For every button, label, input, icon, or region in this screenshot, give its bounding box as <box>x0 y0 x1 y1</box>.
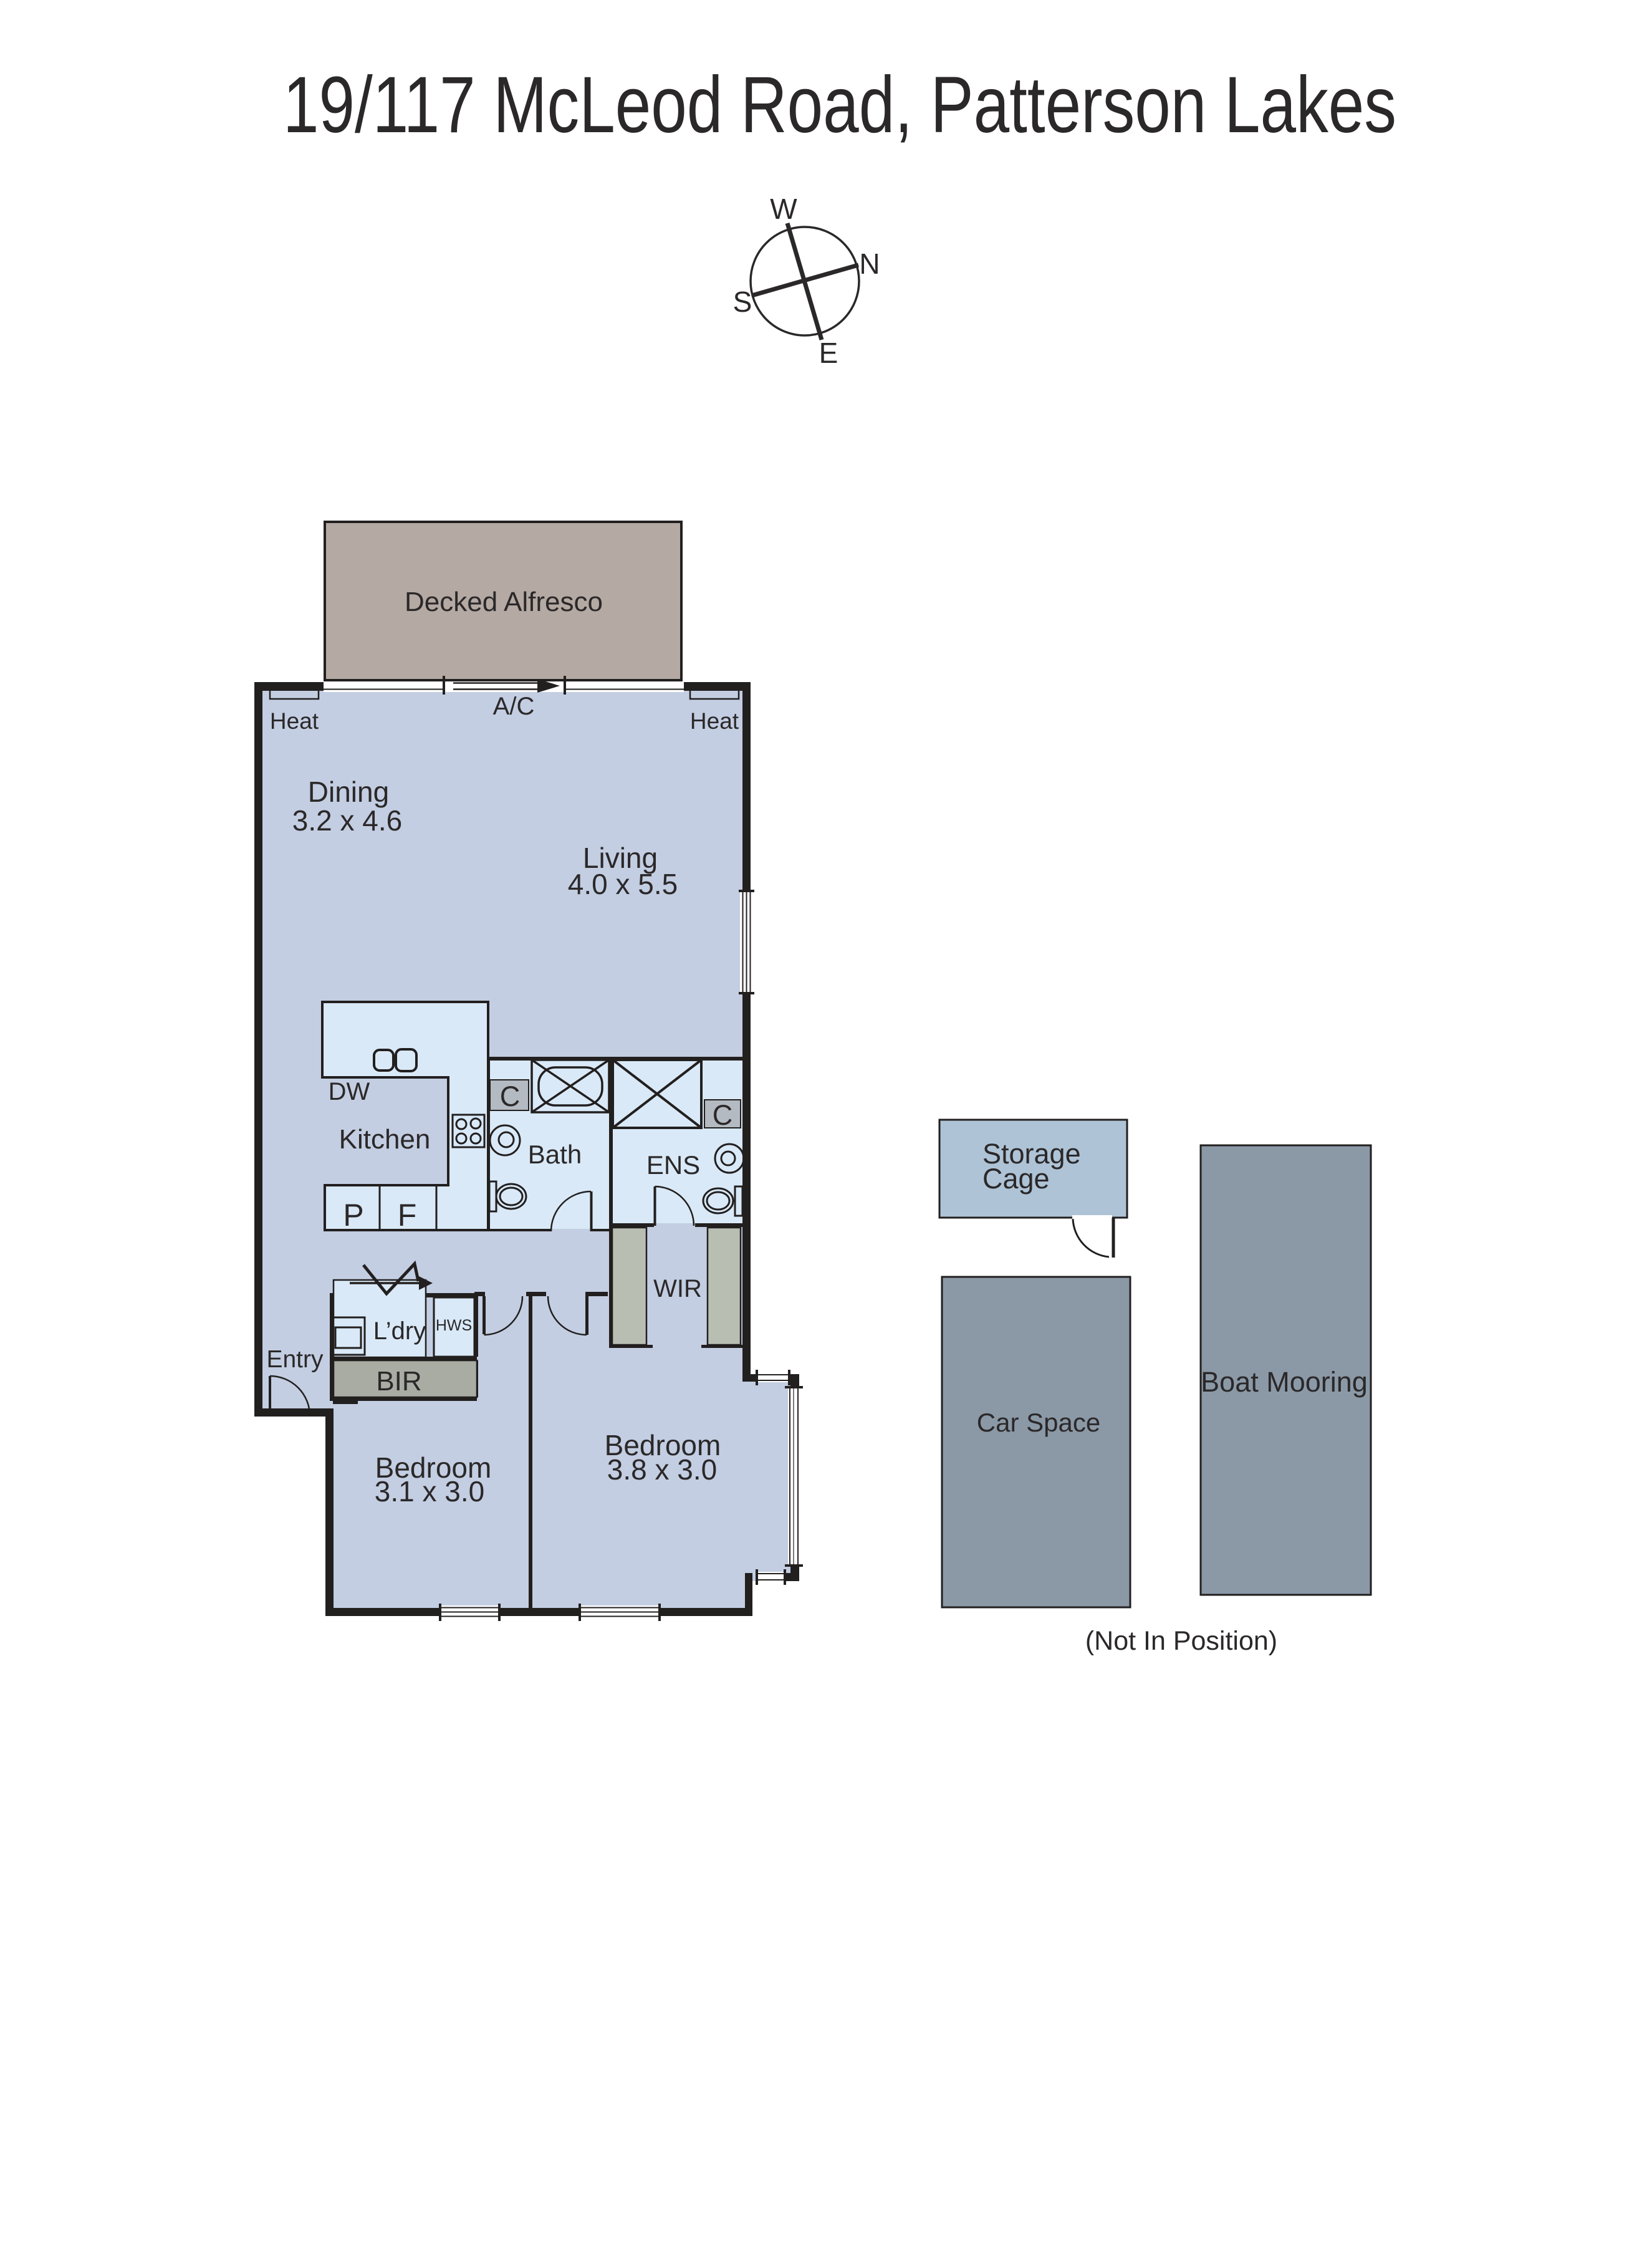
svg-text:(Not In Position): (Not In Position) <box>1085 1626 1277 1656</box>
svg-text:C: C <box>713 1099 733 1131</box>
svg-text:3.8 x 3.0: 3.8 x 3.0 <box>607 1453 717 1486</box>
svg-text:WIR: WIR <box>653 1275 702 1302</box>
svg-text:Kitchen: Kitchen <box>339 1124 431 1155</box>
svg-text:C: C <box>500 1080 521 1112</box>
svg-text:Dining: Dining <box>308 776 389 808</box>
svg-text:Heat: Heat <box>690 708 739 734</box>
svg-text:3.1 x 3.0: 3.1 x 3.0 <box>375 1475 484 1508</box>
svg-text:P: P <box>343 1198 363 1233</box>
svg-text:Boat Mooring: Boat Mooring <box>1201 1366 1368 1398</box>
svg-text:Cage: Cage <box>982 1163 1050 1195</box>
svg-text:F: F <box>398 1198 417 1233</box>
svg-text:ENS: ENS <box>646 1150 700 1180</box>
svg-text:A/C: A/C <box>493 693 535 720</box>
svg-text:HWS: HWS <box>436 1317 472 1334</box>
svg-text:Car Space: Car Space <box>977 1408 1100 1437</box>
svg-text:S: S <box>733 286 752 318</box>
svg-text:DW: DW <box>329 1078 370 1105</box>
svg-text:4.0 x 5.5: 4.0 x 5.5 <box>568 868 678 900</box>
svg-text:Entry: Entry <box>266 1346 324 1373</box>
svg-text:BIR: BIR <box>376 1366 421 1397</box>
svg-text:W: W <box>770 193 797 225</box>
svg-text:19/117 McLeod Road, Patterson: 19/117 McLeod Road, Patterson Lakes <box>283 60 1396 150</box>
svg-text:Bath: Bath <box>528 1140 582 1169</box>
svg-text:N: N <box>859 248 880 280</box>
svg-text:Heat: Heat <box>270 708 319 734</box>
svg-text:E: E <box>819 337 838 369</box>
svg-text:3.2 x 4.6: 3.2 x 4.6 <box>292 804 402 837</box>
svg-text:L’dry: L’dry <box>373 1317 426 1345</box>
svg-text:Decked Alfresco: Decked Alfresco <box>405 587 603 617</box>
